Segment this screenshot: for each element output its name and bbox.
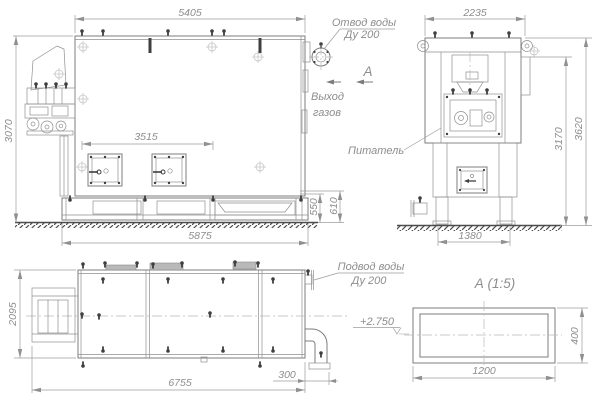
outlet-elbow bbox=[305, 329, 330, 369]
dim-front-height: 3070 bbox=[3, 119, 15, 143]
side-legs bbox=[433, 197, 515, 225]
ground-line-front bbox=[15, 223, 318, 229]
water-outlet-label-line2: Ду 200 bbox=[343, 29, 381, 41]
boiler-body-side bbox=[425, 38, 521, 143]
base-frame bbox=[62, 195, 308, 220]
gas-outlet-line1: Выход bbox=[311, 91, 344, 103]
lifting-lug-right bbox=[522, 41, 533, 52]
burner-assembly bbox=[25, 46, 75, 196]
water-inlet-line1: Подвод воды bbox=[338, 261, 405, 273]
dim-plan-height: 2095 bbox=[7, 302, 19, 327]
side-duct bbox=[521, 57, 530, 95]
boiler-body-front bbox=[75, 36, 305, 196]
water-inlet-label: Подвод воды Ду 200 bbox=[314, 261, 404, 287]
grate-right bbox=[157, 201, 205, 214]
dim-side-height-1: 3170 bbox=[553, 127, 565, 151]
dim-section-height: 400 bbox=[569, 327, 581, 345]
inspection-door bbox=[457, 167, 487, 193]
dim-plan-pipe-offset: 300 bbox=[278, 369, 296, 381]
water-outlet-label-line1: Отвод воды bbox=[332, 17, 396, 29]
dim-plan-length: 6755 bbox=[168, 377, 192, 389]
water-outlet-label: Отвод воды Ду 200 bbox=[324, 17, 396, 49]
dim-base-height-2: 610 bbox=[328, 197, 340, 215]
section-arrows: А bbox=[326, 64, 373, 85]
side-pipe-stub bbox=[411, 196, 427, 217]
feeder-label-text: Питатель bbox=[348, 145, 404, 157]
gas-outlet-label: Выход газов bbox=[311, 91, 344, 119]
front-view: Отвод воды Ду 200 А Выход газов 5405 307… bbox=[3, 7, 396, 246]
dim-section-width: 1200 bbox=[472, 365, 496, 377]
side-view: Питатель 2235 3170 3620 1380 bbox=[348, 7, 592, 246]
water-outlet-flange bbox=[302, 42, 333, 133]
top-hatches bbox=[81, 260, 260, 270]
dim-front-doors-span: 3515 bbox=[134, 131, 158, 143]
section-outer bbox=[413, 308, 555, 363]
elevation-mark: +2.750 bbox=[353, 316, 410, 334]
section-letter: А bbox=[362, 64, 372, 79]
grate-left bbox=[93, 201, 141, 214]
burner-plan bbox=[32, 288, 78, 342]
plan-view: Подвод воды Ду 200 +2.750 2095 6755 bbox=[7, 260, 410, 393]
elevation-text: +2.750 bbox=[360, 316, 395, 328]
dim-side-width-top: 2235 bbox=[462, 7, 487, 19]
section-title: А (1:5) bbox=[474, 276, 516, 291]
section-a-view: А (1:5) 1200 400 bbox=[404, 276, 588, 382]
dim-side-height-2: 3620 bbox=[573, 117, 585, 141]
dim-side-base: 1380 bbox=[458, 230, 482, 242]
boiler-body-plan bbox=[78, 270, 305, 358]
water-inlet-stub bbox=[305, 269, 314, 290]
water-inlet-line2: Ду 200 bbox=[350, 275, 388, 287]
dim-front-width-top: 5405 bbox=[178, 7, 202, 19]
dim-base-height-1: 550 bbox=[308, 198, 320, 216]
dim-front-width-bottom: 5875 bbox=[188, 230, 212, 242]
technical-drawing: Отвод воды Ду 200 А Выход газов 5405 307… bbox=[0, 0, 600, 400]
gas-outlet-line2: газов bbox=[313, 107, 341, 119]
drawing-canvas: Отвод воды Ду 200 А Выход газов 5405 307… bbox=[0, 0, 600, 400]
